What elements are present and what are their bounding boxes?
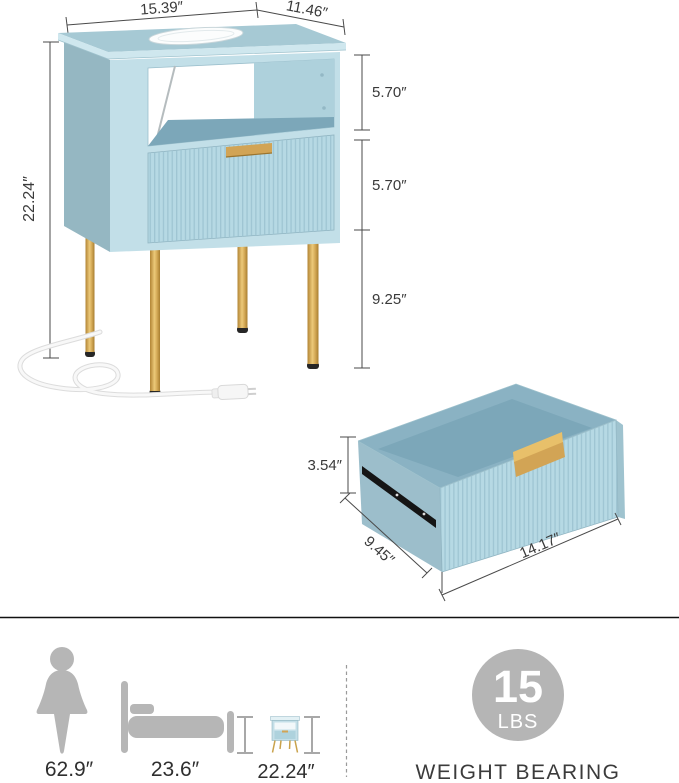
weight-value: 15: [493, 661, 543, 712]
total-height-label: 22.24″: [21, 176, 38, 222]
product-dimension-diagram: 15.39″ 11.46″ 22.24″ 5.70″ 5.70″ 9.25″: [0, 0, 679, 783]
drawer-front: [148, 135, 334, 243]
weight-capacity-badge: 15 LBS: [472, 649, 564, 741]
nightstand-illustration: [20, 24, 346, 400]
weight-bearing-caption: WEIGHT BEARING: [416, 761, 621, 783]
dim-drawer-height: 5.70″ 9.25″: [354, 140, 407, 368]
bed-height-label: 23.6″: [151, 758, 200, 781]
diagram-canvas: 15.39″ 11.46″ 22.24″ 5.70″ 5.70″ 9.25″: [0, 0, 679, 783]
height-marker-icon: [304, 717, 320, 753]
nightstand-height-label: 22.24″: [257, 761, 314, 783]
leg-height-label: 9.25″: [372, 291, 407, 308]
power-cord: [20, 332, 256, 400]
drawer-detail-illustration: 3.54″ 9.45″ 14.17″: [307, 384, 625, 601]
drawer-height-label: 5.70″: [372, 177, 407, 194]
nightstand-icon: [271, 717, 300, 753]
bed-icon: [121, 681, 234, 753]
height-marker-icon: [237, 717, 253, 753]
person-height-label: 62.9″: [45, 758, 94, 781]
dim-drawer-detail-height: 3.54″: [307, 437, 356, 493]
side-panel: [64, 41, 110, 252]
dim-total-height: 22.24″: [21, 42, 59, 358]
person-icon: [37, 647, 88, 754]
weight-unit: LBS: [498, 711, 539, 733]
dim-shelf-height: 5.70″: [354, 55, 407, 130]
drawer-detail-height-label: 3.54″: [307, 457, 342, 474]
top-depth-label: 11.46″: [285, 0, 330, 22]
power-plug-icon: [212, 384, 257, 400]
shelf-height-label: 5.70″: [372, 84, 407, 101]
